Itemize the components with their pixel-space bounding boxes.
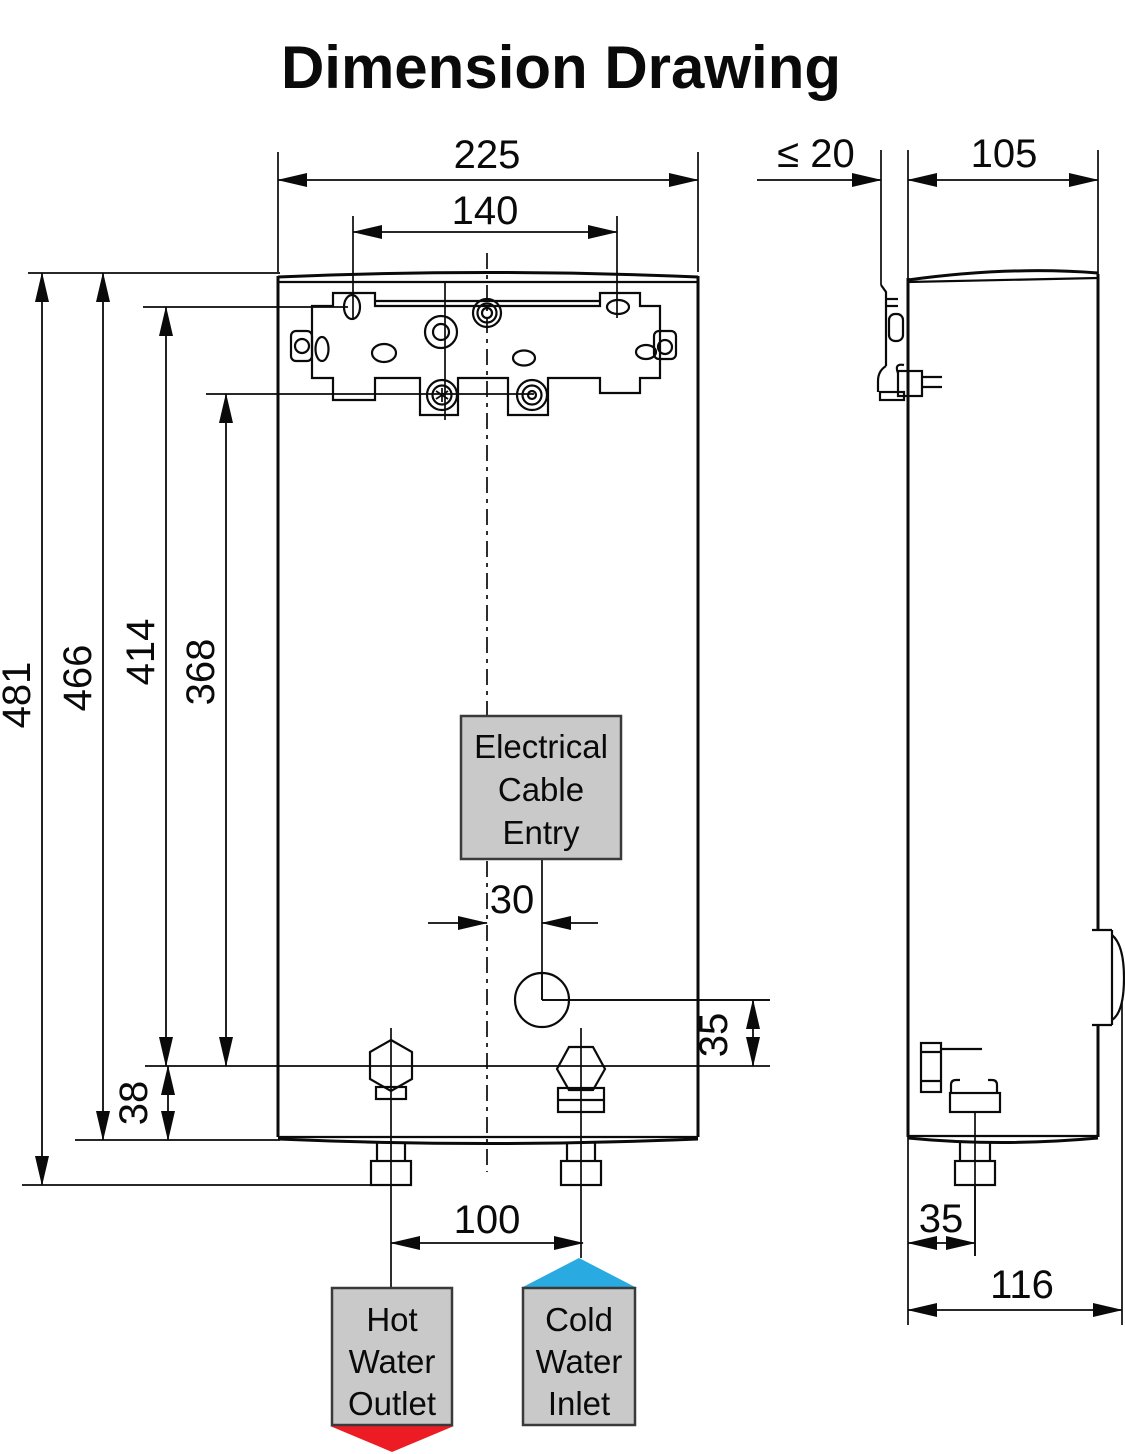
- cold-label-line1: Cold: [545, 1301, 613, 1338]
- side-extension-lines: [881, 150, 1122, 1325]
- dim-wall-clearance: ≤ 20: [777, 132, 855, 176]
- bracket-clip-right: [636, 331, 676, 359]
- dim-front-width: 225: [454, 133, 521, 177]
- cold-label-line3: Inlet: [548, 1385, 610, 1422]
- heater-front-body: [278, 273, 698, 1144]
- cable-entry-label-line2: Cable: [498, 771, 584, 808]
- side-view: ≤ 20 105 35 116: [757, 132, 1124, 1325]
- cable-entry-label-line1: Electrical: [474, 728, 608, 765]
- dim-cable-offset: 30: [490, 878, 535, 922]
- dim-upper-mount-height: 414: [119, 619, 163, 686]
- dim-pipe-offset: 35: [919, 1197, 964, 1241]
- bracket-clip-left: [291, 331, 329, 361]
- dim-lower-mount-height: 368: [179, 639, 223, 706]
- hot-label-line3: Outlet: [348, 1385, 436, 1422]
- heater-side-body: [908, 271, 1124, 1143]
- dim-overall-depth: 116: [990, 1263, 1054, 1307]
- cold-label-line2: Water: [536, 1343, 623, 1380]
- cable-entry-label-box: Electrical Cable Entry: [461, 716, 621, 859]
- side-protrusion: [1092, 930, 1124, 1025]
- dimension-drawing-svg: Dimension Drawing: [0, 0, 1125, 1454]
- dim-overall-height: 481: [0, 662, 39, 729]
- cable-entry-label-line3: Entry: [502, 814, 580, 851]
- mount-slot-right: [607, 300, 629, 314]
- mounting-bracket: [291, 293, 676, 415]
- dim-mount-spacing: 140: [452, 189, 519, 233]
- dim-body-depth: 105: [971, 132, 1038, 176]
- dimension-drawing-page: Dimension Drawing: [0, 0, 1125, 1454]
- dim-connection-offset: 38: [112, 1081, 156, 1126]
- bracket-screw-right: [517, 380, 547, 410]
- cold-inlet-label-box: Cold Water Inlet: [521, 1258, 637, 1425]
- dim-body-height: 466: [56, 645, 100, 712]
- wall-bracket-profile: [878, 285, 942, 400]
- bracket-screw-left: [427, 380, 457, 410]
- page-title: Dimension Drawing: [281, 34, 841, 101]
- hot-label-line2: Water: [349, 1343, 436, 1380]
- front-view: 225 140 481 466 414 368 38 30 35 100 Ele…: [0, 133, 770, 1452]
- dim-cable-height: 35: [692, 1013, 736, 1058]
- cold-flow-arrow-icon: [521, 1258, 637, 1288]
- hot-outlet-label-box: Hot Water Outlet: [330, 1288, 454, 1452]
- hot-flow-arrow-icon: [330, 1426, 454, 1452]
- dim-pipe-spacing: 100: [454, 1198, 521, 1242]
- bracket-center-fitting: [473, 299, 501, 327]
- hot-label-line1: Hot: [366, 1301, 417, 1338]
